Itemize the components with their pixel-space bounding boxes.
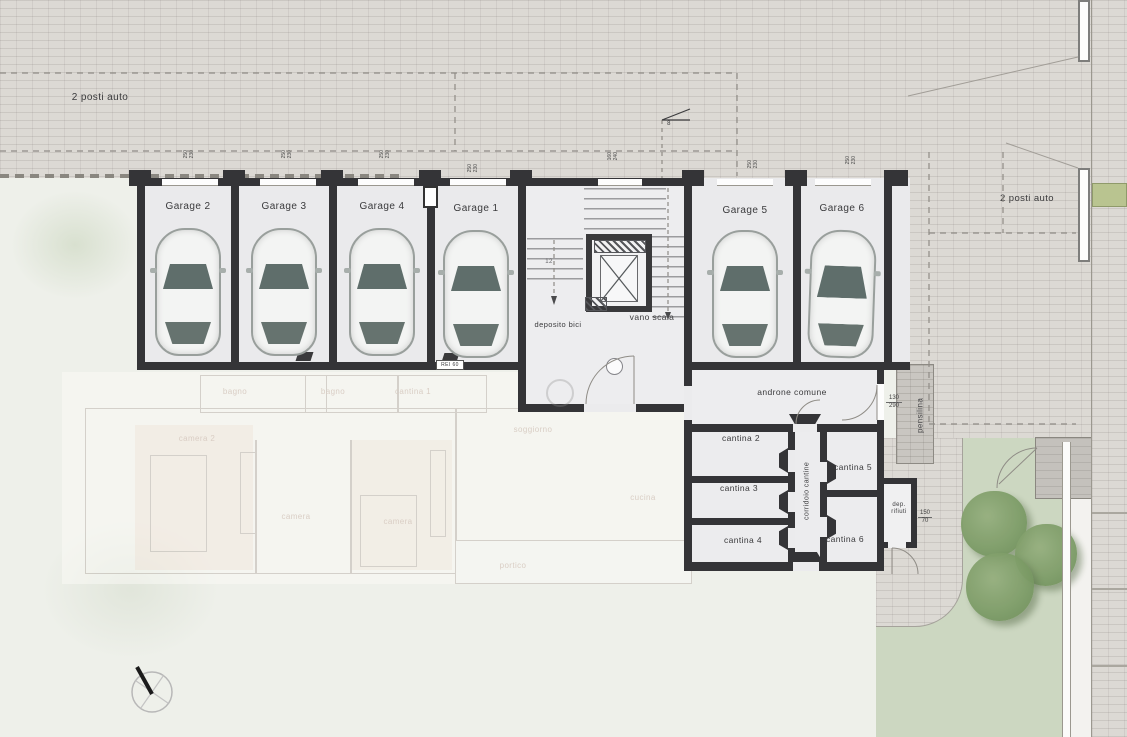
- north-compass-icon: [132, 667, 172, 712]
- floor-plan-sheet: 2 posti auto 2 posti auto bagno bagno ca…: [0, 0, 1127, 737]
- linework-overlay: [0, 0, 1127, 737]
